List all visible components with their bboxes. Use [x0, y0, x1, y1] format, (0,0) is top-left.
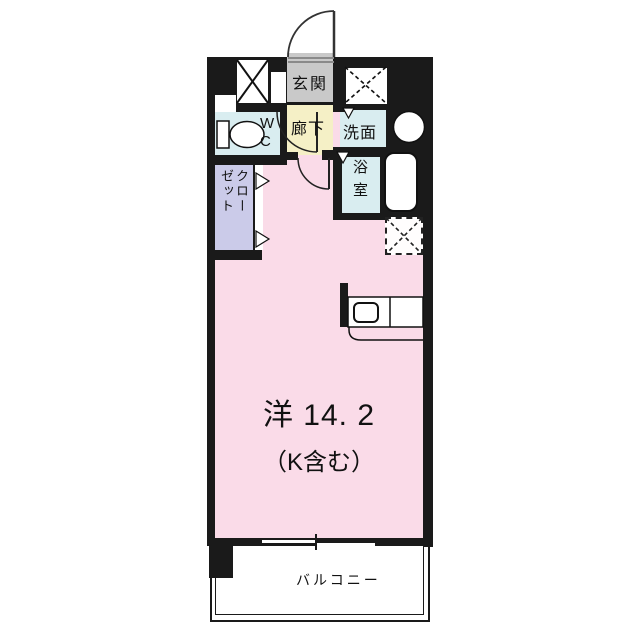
- closet-right-line: [253, 163, 255, 250]
- shoe-cabinet: [271, 72, 286, 103]
- sliding-window-pane-left: [262, 540, 316, 543]
- wall-notch: [215, 95, 236, 112]
- bathtub-surround: [380, 148, 433, 215]
- closet-top-line: [215, 163, 255, 165]
- meter-box: [345, 67, 388, 105]
- threshold-line-2: [288, 61, 334, 63]
- entrance-door-icon: [288, 11, 334, 57]
- genkan-label: 玄関: [292, 70, 328, 94]
- floor-plan: 玄関 WC 廊下 洗面 浴室 クローゼット 洋 14. 2 （K含む） バルコニ…: [0, 0, 640, 640]
- bathroom-label: 浴室: [349, 159, 370, 215]
- main-room-label: 洋 14. 2 （K含む）: [215, 390, 423, 477]
- threshold-line-1: [288, 57, 334, 59]
- wall-hallway-bottom-left: [280, 152, 298, 160]
- main-room-note: （K含む）: [215, 442, 423, 477]
- closet-label: クローゼット: [219, 169, 249, 221]
- wall-closet-bottom: [207, 250, 262, 260]
- balcony-pillar-block: [209, 546, 233, 578]
- kitchen-partition: [340, 283, 348, 327]
- washroom-label: 洗面: [343, 119, 377, 143]
- refrigerator-space-box: [385, 217, 423, 255]
- wall-bathroom-left: [333, 157, 342, 220]
- main-room-size: 洋 14. 2: [215, 390, 423, 434]
- closet-door-track: [255, 165, 263, 250]
- wc-label: WC: [260, 115, 275, 151]
- pipe-space-box: [237, 60, 268, 103]
- hallway-label: 廊下: [291, 115, 325, 139]
- sliding-window-center-tick: [315, 534, 317, 550]
- sliding-window-pane-right: [317, 543, 375, 546]
- wall-top-right-fill: [386, 57, 433, 112]
- balcony-label: バルコニー: [296, 570, 381, 590]
- genkan-step-line: [287, 102, 333, 105]
- basin-counter-block: [386, 105, 433, 147]
- wall-left: [207, 57, 215, 545]
